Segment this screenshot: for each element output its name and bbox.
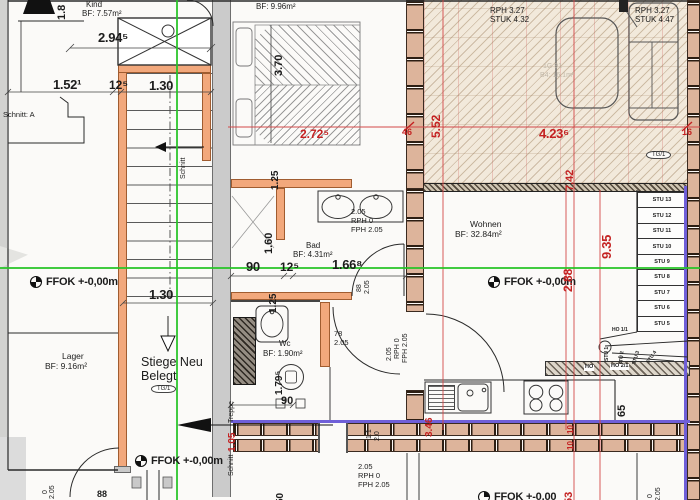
reddim-272: 2.72⁵ <box>300 128 329 140</box>
room-wohnen-area: BF: 32.84m² <box>455 230 502 239</box>
room-lager-name: Lager <box>62 352 84 361</box>
room-bad-name: Bad <box>306 242 320 250</box>
dim-65: 65 <box>617 405 628 417</box>
dim-125-wall-a: 1.25 <box>271 171 281 190</box>
reddim-552: 5.52 <box>430 115 442 138</box>
room-bad-area: BF: 4.31m² <box>293 251 333 259</box>
room-schlafen-area: BF: 9.96m² <box>256 3 296 11</box>
bath-fixtures <box>232 191 403 248</box>
dim-160: 1.60 <box>264 233 275 254</box>
ho11-tag: HO 1/1 <box>612 328 628 333</box>
section-marker-icon <box>23 0 55 14</box>
ho-tag: HO <box>584 365 594 371</box>
room-lager-area: BF: 9.16m² <box>45 362 87 371</box>
dim-130b: 1.30 <box>149 288 173 301</box>
hall-door-spec-2: RPH 0 <box>394 338 401 359</box>
treppe-label: Treppe <box>228 401 235 423</box>
dim-18: 1.8 <box>57 5 68 20</box>
room-kind-name: Kind <box>86 1 102 9</box>
bad-door-height: 2.05 <box>364 280 371 294</box>
dim-370: 3.70 <box>274 55 285 76</box>
reddim-53: 53 <box>564 492 575 500</box>
door-arcs <box>70 0 504 497</box>
kitchen-fixtures <box>425 381 568 414</box>
dim-90-wc: 90 <box>281 396 293 407</box>
level-label-cut: FFOK +-0,00 <box>494 492 556 500</box>
bottomleft-spec-2: 0 <box>42 490 49 494</box>
terrace-tag-badge: TG/1 <box>646 151 671 159</box>
bottom-door-spec-1: 2.05 <box>358 463 373 471</box>
winder-label: STU 1 <box>605 347 610 361</box>
terrace-right-stuk: STUK 4.47 <box>635 16 674 24</box>
reddim-46: 46 <box>402 128 412 137</box>
terrace-left-rph: RPH 3.27 <box>490 7 525 15</box>
dim-179: 1.79⁵ <box>275 371 285 395</box>
dim-166: 1.66⁸ <box>332 258 362 271</box>
bad-door-width: 88 <box>356 284 363 292</box>
stiege-label-line2: Belegt <box>141 370 176 383</box>
room-wohnen-name: Wohnen <box>470 220 502 229</box>
ho21-tag: HO 2/1 <box>610 364 629 370</box>
winder-steps <box>599 332 688 361</box>
kitchen-counter-line <box>424 380 615 420</box>
terrace-right-rph: RPH 3.27 <box>635 7 670 15</box>
level-label: FFOK +-0,00m <box>46 277 118 288</box>
stiege-label-line1: Stiege Neu <box>141 356 203 369</box>
reddim-105: 1.05 <box>228 433 238 452</box>
dim-125a: 12⁵ <box>109 79 128 91</box>
dim-90-bad: 90 <box>246 260 260 273</box>
reddim-10b: 10 <box>567 441 575 450</box>
reddim-742: 7.42 <box>565 170 576 191</box>
mid-door-spec-2: 2.0 <box>374 431 381 441</box>
badsink-spec-2: RPH 0 <box>351 217 373 225</box>
reddim-10a: 10 <box>567 425 575 434</box>
bottomright-spec-2: 0 <box>647 494 654 498</box>
section-a-label: Schnitt: A <box>3 111 35 119</box>
bottom-door-spec-3: FPH 2.05 <box>358 481 390 489</box>
bottom-door-spec-2: RPH 0 <box>358 472 380 480</box>
dim-152: 1.52¹ <box>53 78 81 91</box>
elevator-shaft-symbol <box>118 18 211 65</box>
room-wc-area: BF: 1.90m² <box>263 350 303 358</box>
schnitt-stair-label: Schnitt <box>180 158 187 179</box>
terrace-faint-text1: 1G 91 <box>543 63 562 70</box>
hall-door-spec-3: FPH 2.05 <box>402 333 409 363</box>
reddim-423: 4.23⁶ <box>539 127 569 140</box>
dim-125b: 12⁵ <box>280 261 299 273</box>
dim-294: 2.94⁵ <box>98 31 128 44</box>
terrace-faint-text2: B4: 16.1m² <box>540 72 574 79</box>
level-label: FFOK +-0,00m <box>151 456 223 467</box>
bottomleft-spec-1: 2.05 <box>49 485 56 499</box>
bottomright-spec-1: 2.05 <box>655 487 662 500</box>
dim-130a: 1.30 <box>149 79 173 92</box>
wc-door-width: 78 <box>334 330 342 338</box>
badsink-spec-1: 2.05 <box>351 208 366 216</box>
dim-50: 50 <box>276 493 286 500</box>
terrace-left-stuk: STUK 4.32 <box>490 16 529 24</box>
linework-overlay <box>0 0 700 500</box>
dim-88-door: 88 <box>97 490 107 499</box>
room-wc-name: Wc <box>279 340 291 348</box>
lager-door-lines <box>147 470 159 500</box>
reddim-935: 9.35 <box>600 235 613 259</box>
room-kind-area: BF: 7.57m² <box>82 10 122 18</box>
kind-closet-lines <box>8 97 84 143</box>
door-jamb <box>132 477 141 488</box>
dim-125-wall-b: 1.25 <box>269 294 279 313</box>
reddim-16: 16 <box>682 128 692 137</box>
hall-door-spec-1: 2.05 <box>386 347 393 361</box>
mid-door-spec-1: 1.1 <box>366 429 373 439</box>
floorplan-canvas: STU 13 STU 12 STU 11 STU 10 STU 9 STU 8 … <box>0 0 700 500</box>
reddim-346: 3.46 <box>425 418 435 437</box>
reddim-288: 2.88 <box>562 269 574 292</box>
schnitt-bottom-label: Schnitt <box>228 455 235 476</box>
stair-arrows <box>155 142 333 432</box>
door-jamb <box>163 477 172 488</box>
stiege-tag-badge: TG/1 <box>151 385 176 393</box>
level-marker-icon <box>31 277 500 500</box>
wc-door-height: 2.05 <box>334 339 349 347</box>
terrace-jamb-block <box>619 0 628 12</box>
badsink-spec-3: FPH 2.05 <box>351 226 383 234</box>
grid-line-vertical <box>176 0 178 500</box>
